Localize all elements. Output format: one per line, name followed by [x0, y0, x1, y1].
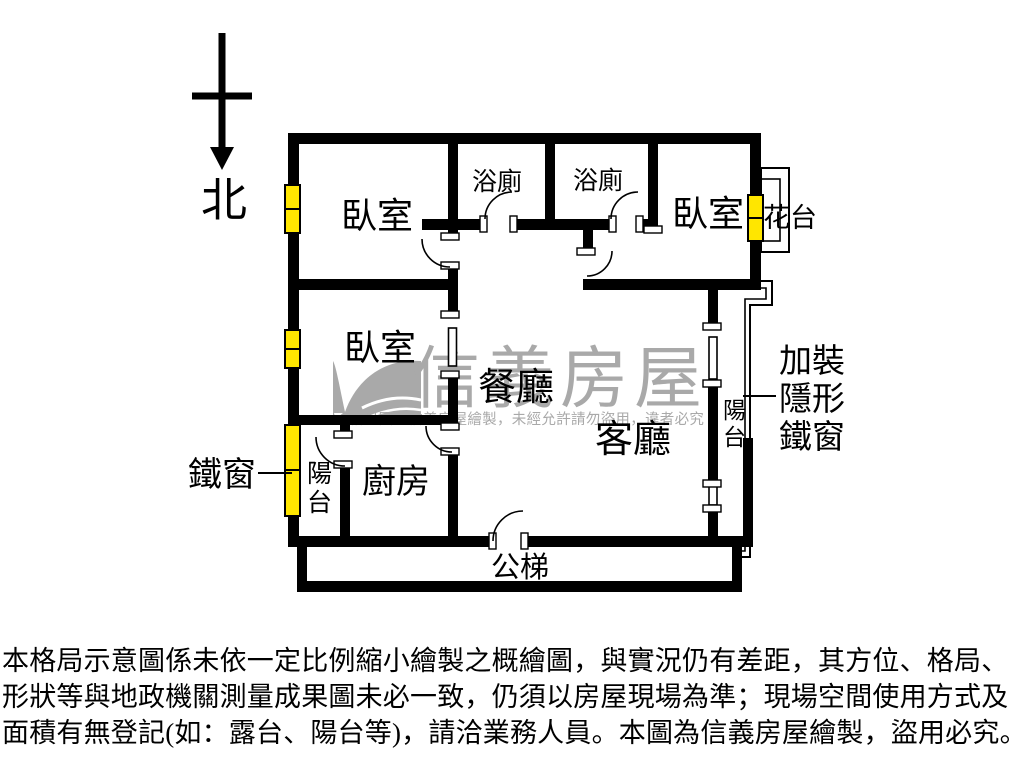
floor-plan: 信義房屋 格局圖為信義房屋繪製，未經允許請勿盜用，違者必究 [0, 0, 1024, 643]
room-label-balcony-left: 陽台 [304, 460, 331, 518]
room-label-bath-right: 浴廁 [573, 167, 623, 195]
window-living-balcony-upper [709, 337, 717, 379]
disclaimer-line-1: 本格局示意圖係未依一定比例縮小繪製之概繪圖，與實況仍有差距，其方位、格局、 [2, 643, 1022, 679]
label-flower-bed: 花台 [763, 203, 817, 233]
disclaimer-line-2: 形狀等與地政機關測量成果圖未必一致，仍須以房屋現場為準；現場空間使用方式及 [2, 679, 1022, 715]
room-label-balcony-right: 陽台 [720, 398, 746, 452]
door-arc-bath-right [611, 192, 638, 219]
label-iron-window: 鐵窗 [188, 456, 256, 494]
sliding-door-bedroom-mid-left [449, 328, 457, 366]
door-arc-bath-left [485, 192, 512, 219]
room-label-kitchen: 廚房 [362, 463, 430, 501]
disclaimer-line-3: 面積有無登記(如：露台、陽台等)，請洽業務人員。本圖為信義房屋繪製，盜用必究。 [2, 715, 1022, 751]
room-label-bedroom-top-right: 臥室 [672, 194, 744, 234]
room-label-living: 客廳 [595, 419, 671, 461]
compass: 北 [192, 33, 252, 226]
compass-north-label: 北 [201, 175, 247, 226]
label-hidden-grille-2: 隱形 [779, 382, 845, 418]
room-label-bedroom-mid-left: 臥室 [344, 328, 416, 368]
label-hidden-grille-3: 鐵窗 [779, 419, 845, 456]
room-label-bath-left: 浴廁 [472, 168, 522, 196]
window-living-balcony-lower [709, 486, 717, 505]
floorplan-page: 信義房屋 格局圖為信義房屋繪製，未經允許請勿盜用，違者必究 [0, 0, 1024, 768]
compass-arrowhead-icon [210, 147, 234, 170]
room-label-stairs: 公梯 [491, 551, 549, 584]
disclaimer: 本格局示意圖係未依一定比例縮小繪製之概繪圖，與實況仍有差距，其方位、格局、 形狀… [0, 643, 1024, 751]
room-label-dining: 餐廳 [478, 367, 554, 409]
label-hidden-grille-1: 加裝 [779, 343, 845, 380]
room-label-bedroom-top-left: 臥室 [341, 196, 413, 236]
door-arc-entrance [493, 511, 523, 541]
